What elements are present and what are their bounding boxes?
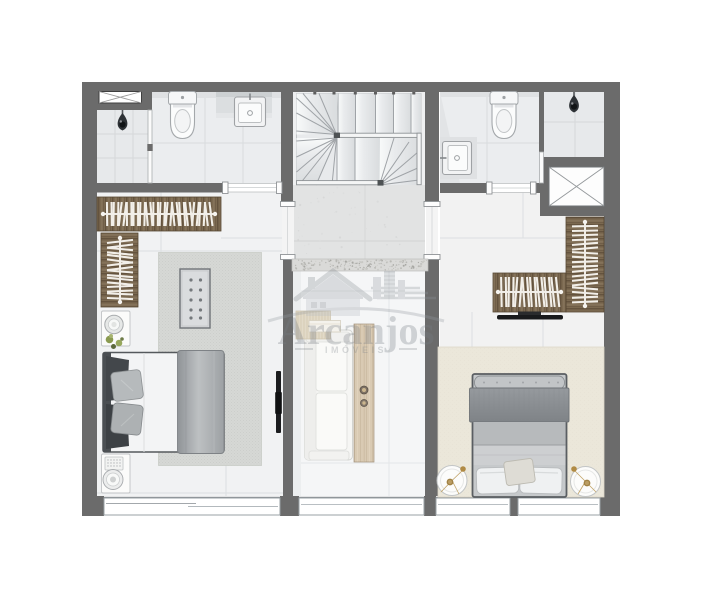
svg-text:IMÓVEIS: IMÓVEIS xyxy=(325,344,387,355)
